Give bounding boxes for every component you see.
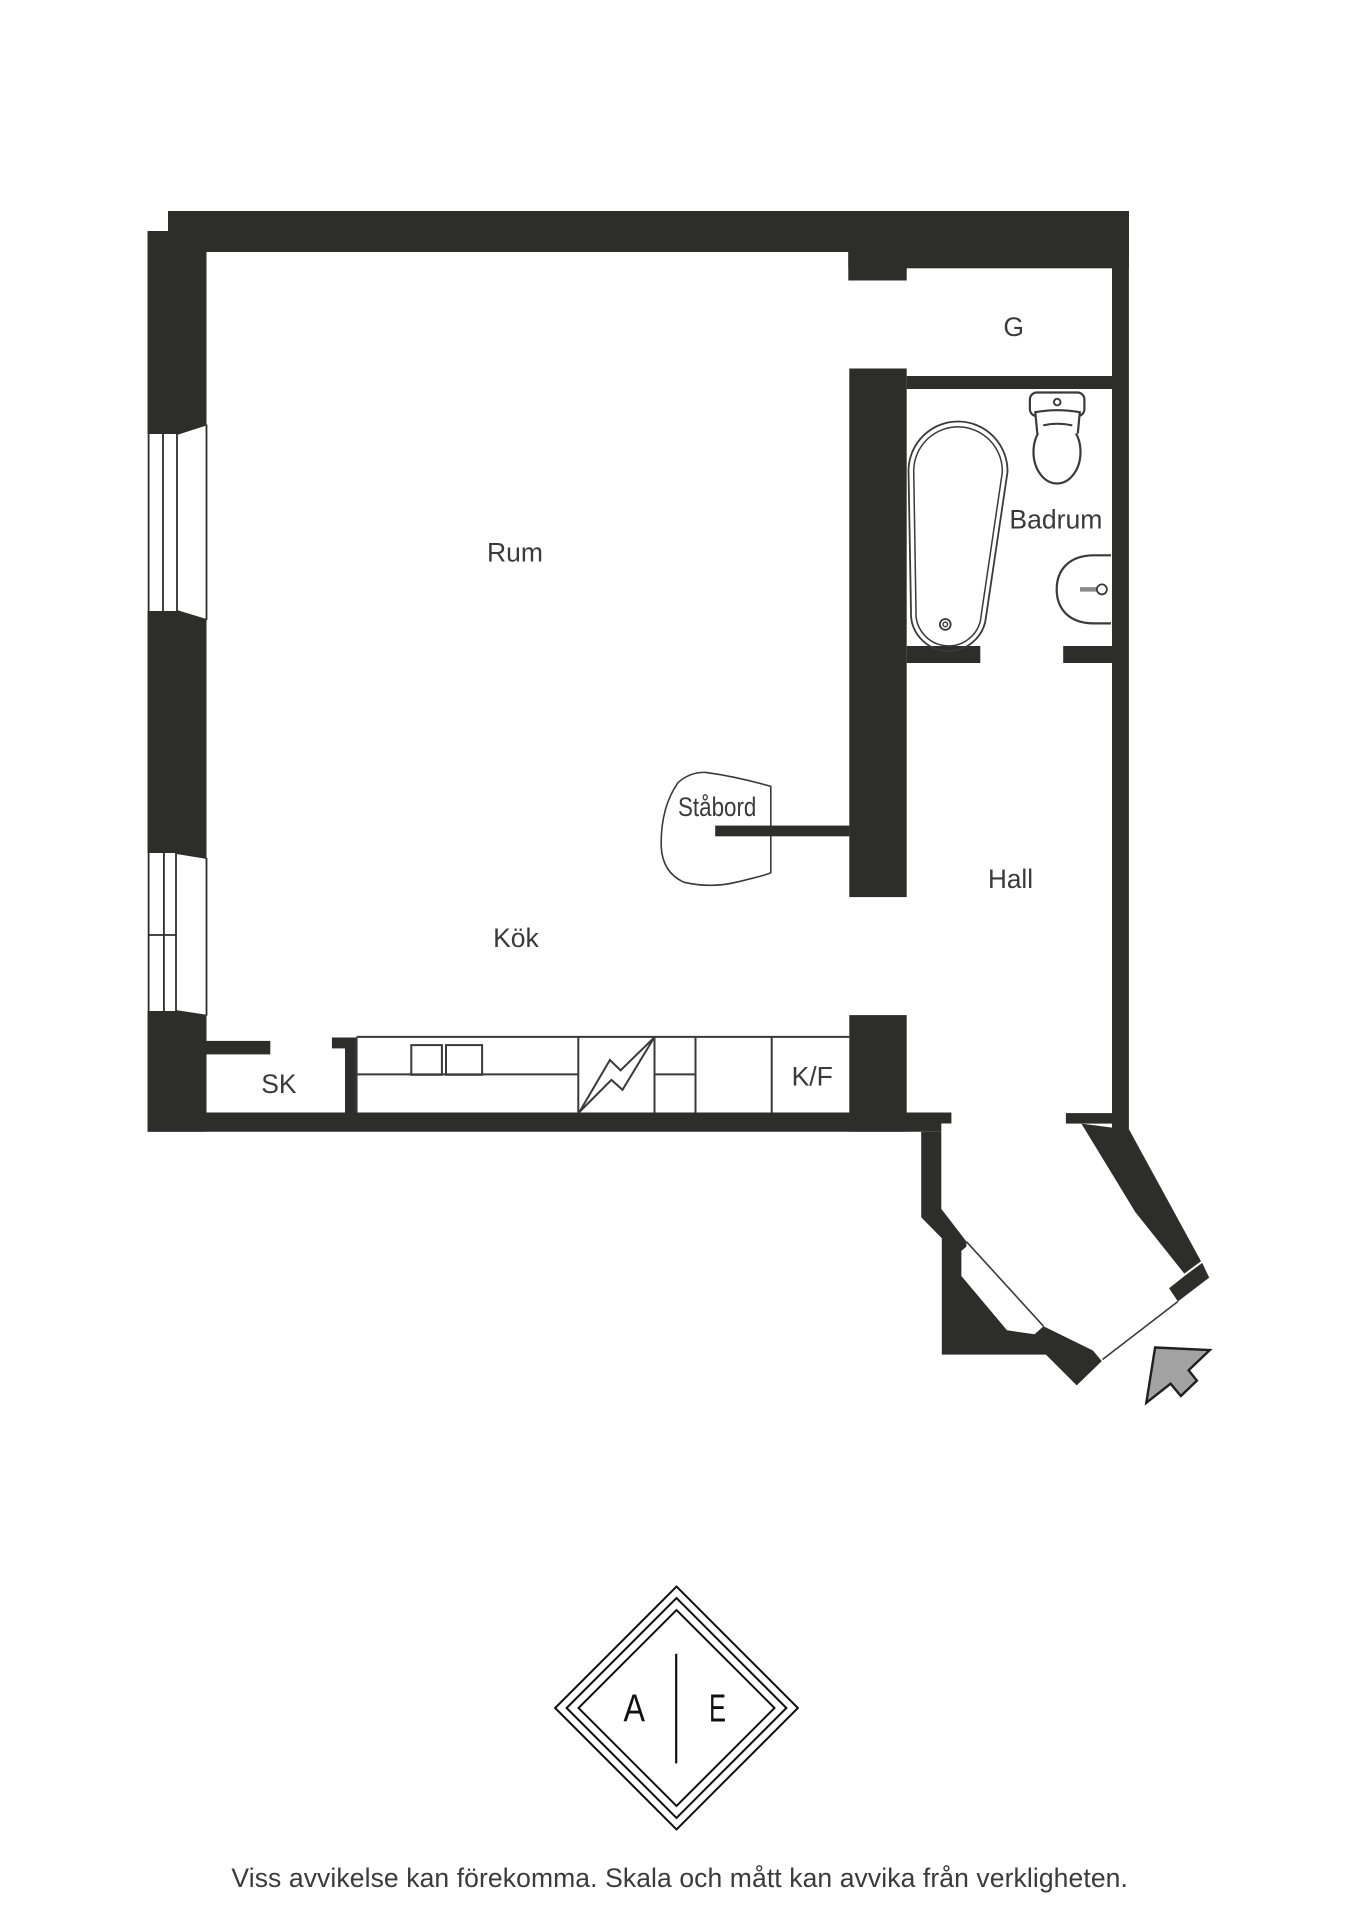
- svg-text:K/F: K/F: [792, 1062, 833, 1092]
- svg-text:Ståbord: Ståbord: [678, 793, 756, 822]
- svg-text:Badrum: Badrum: [1009, 505, 1102, 535]
- svg-text:Kök: Kök: [493, 923, 539, 953]
- svg-text:Viss avvikelse kan förekomma.: Viss avvikelse kan förekomma. Skala och …: [231, 1863, 1128, 1893]
- svg-text:Rum: Rum: [487, 538, 543, 568]
- svg-text:A: A: [624, 1688, 646, 1731]
- svg-text:E: E: [709, 1688, 726, 1731]
- svg-text:SK: SK: [261, 1069, 297, 1099]
- svg-text:Hall: Hall: [988, 864, 1033, 894]
- svg-text:G: G: [1003, 312, 1024, 342]
